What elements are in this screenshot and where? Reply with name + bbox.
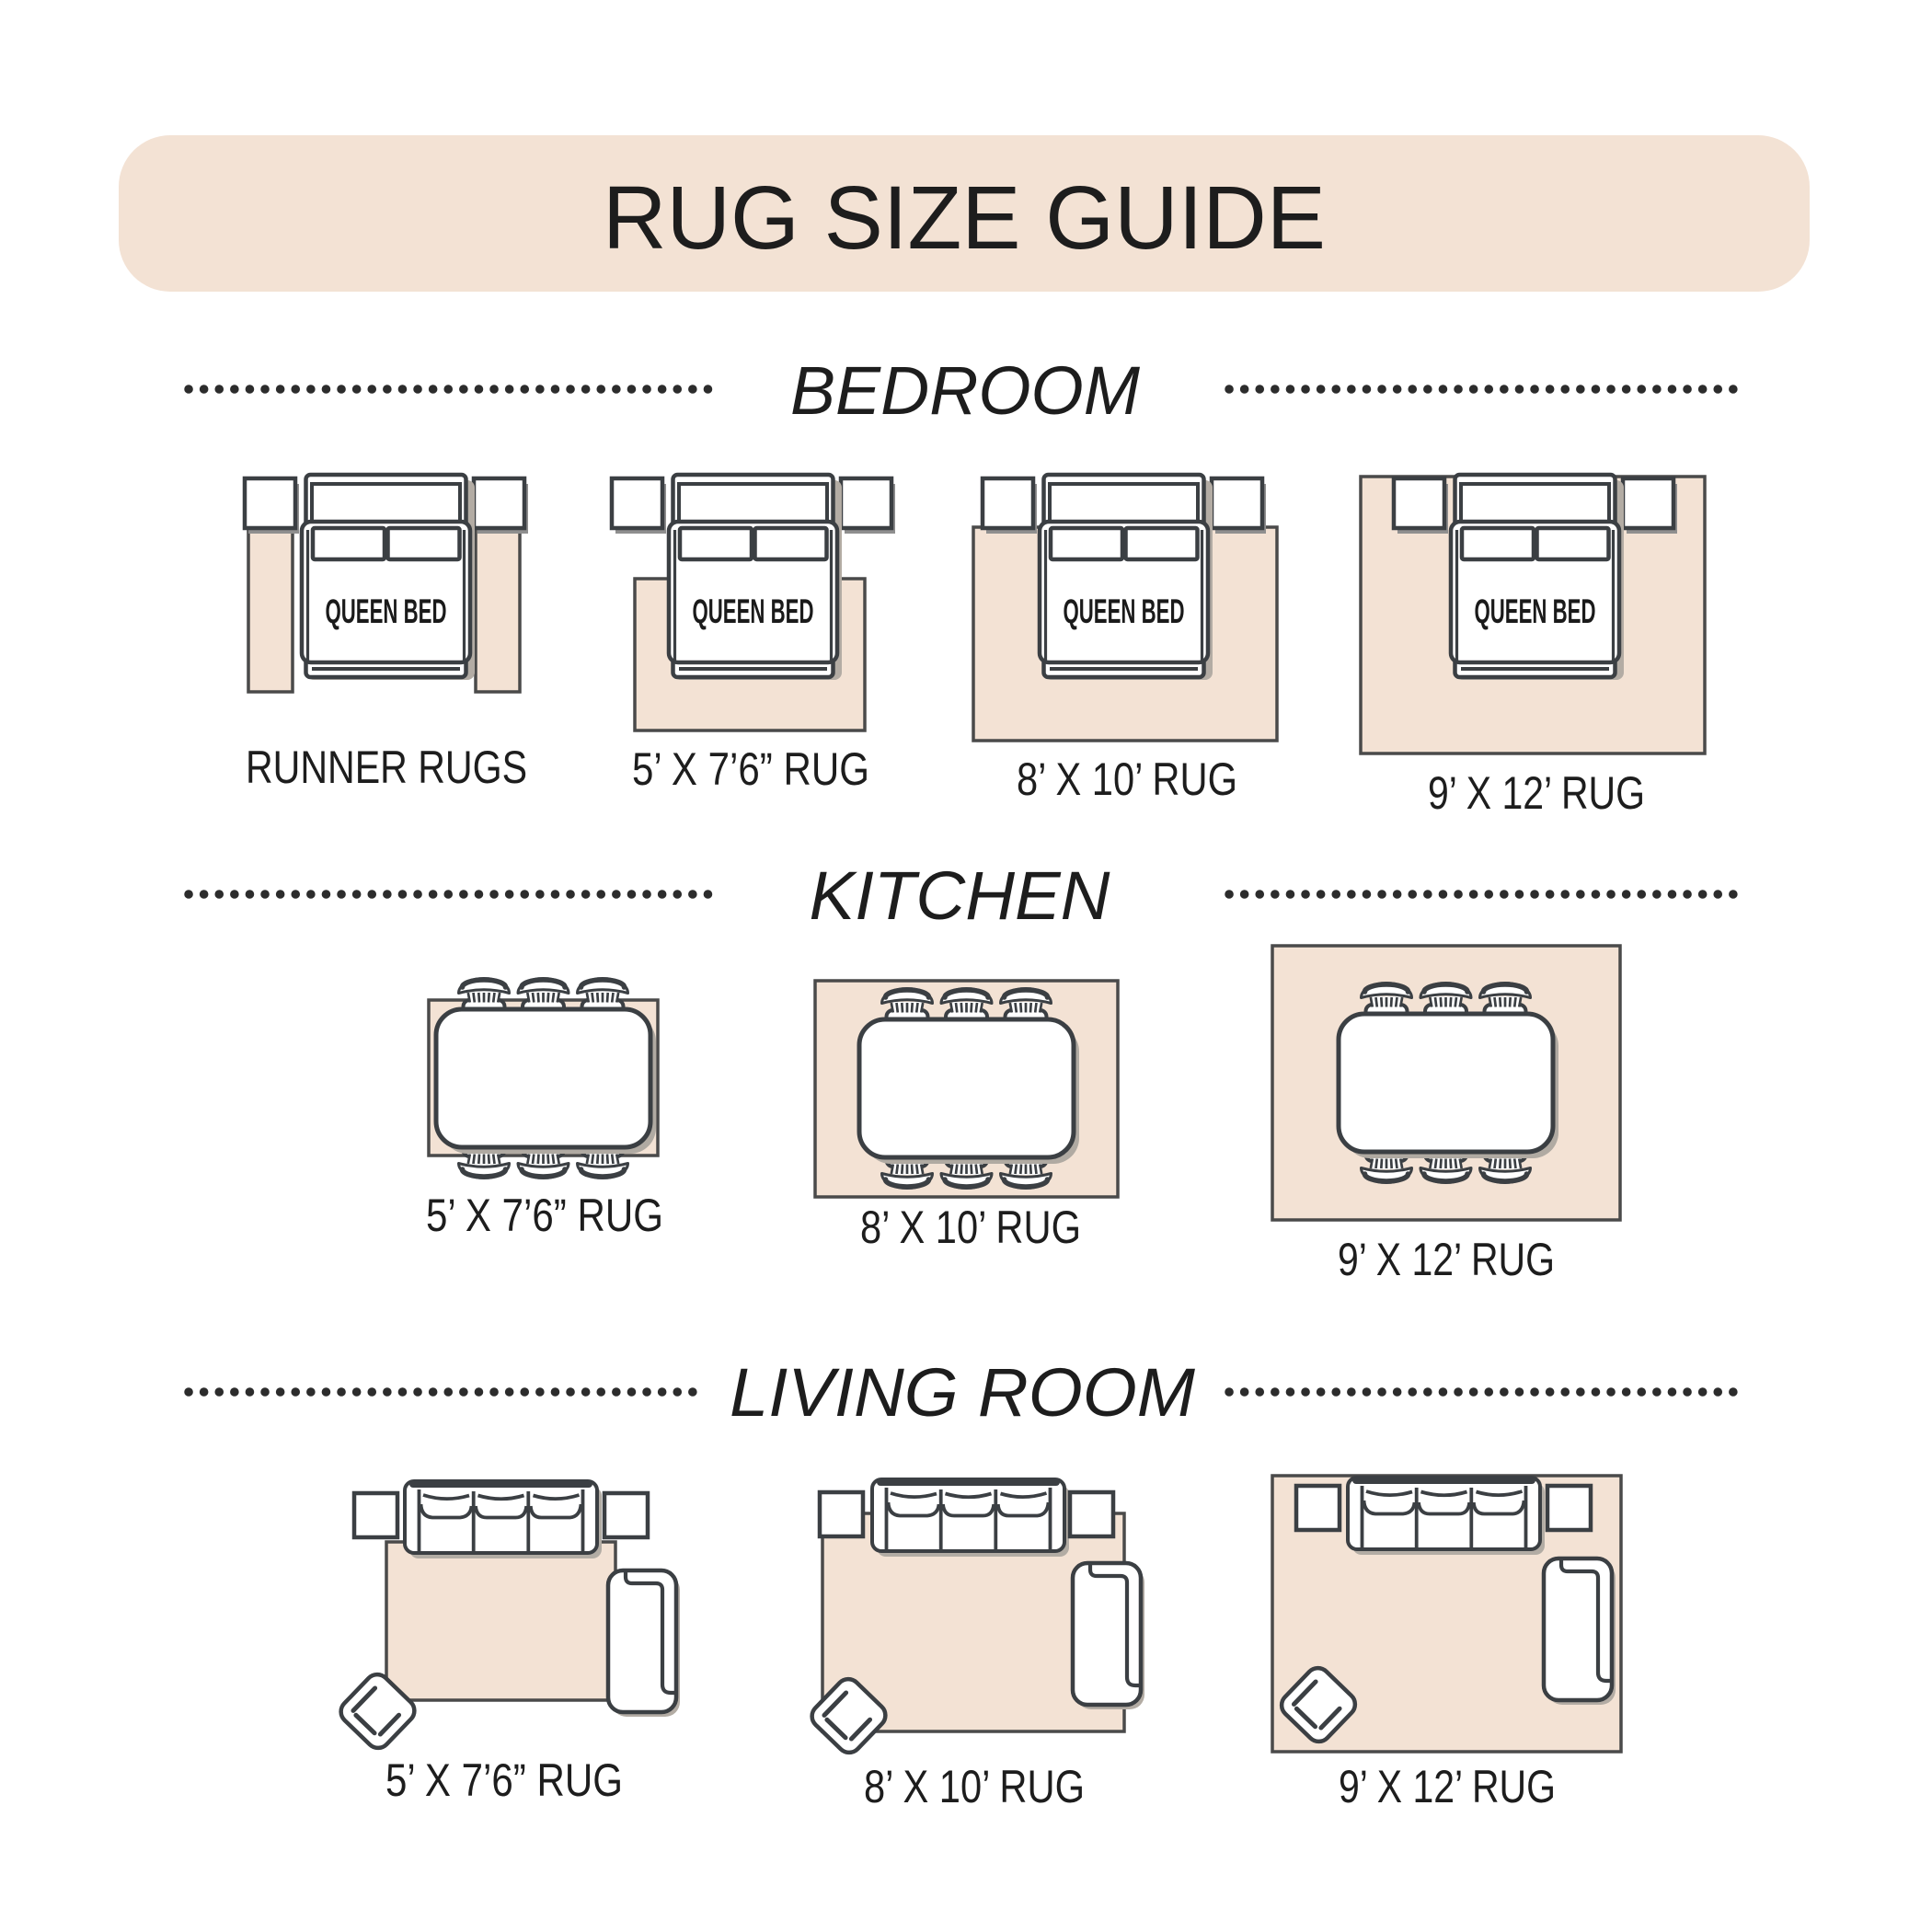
svg-text:RUNNER RUGS: RUNNER RUGS <box>246 742 527 793</box>
svg-text:BEDROOM: BEDROOM <box>790 352 1140 429</box>
svg-text:9’ X 12’ RUG: 9’ X 12’ RUG <box>1428 767 1645 819</box>
svg-text:5’ X 7’6” RUG: 5’ X 7’6” RUG <box>385 1754 623 1806</box>
svg-text:KITCHEN: KITCHEN <box>810 857 1111 934</box>
svg-text:RUG SIZE GUIDE: RUG SIZE GUIDE <box>603 167 1326 268</box>
svg-text:5’ X 7’6” RUG: 5’ X 7’6” RUG <box>426 1190 663 1241</box>
svg-text:9’ X 12’ RUG: 9’ X 12’ RUG <box>1338 1234 1555 1285</box>
svg-text:8’ X 10’ RUG: 8’ X 10’ RUG <box>860 1202 1081 1253</box>
svg-text:LIVING ROOM: LIVING ROOM <box>730 1354 1195 1431</box>
svg-text:9’ X 12’ RUG: 9’ X 12’ RUG <box>1339 1761 1556 1812</box>
svg-text:8’ X 10’ RUG: 8’ X 10’ RUG <box>864 1761 1085 1812</box>
svg-text:8’ X 10’ RUG: 8’ X 10’ RUG <box>1017 753 1237 805</box>
svg-text:5’ X 7’6” RUG: 5’ X 7’6” RUG <box>632 743 869 795</box>
